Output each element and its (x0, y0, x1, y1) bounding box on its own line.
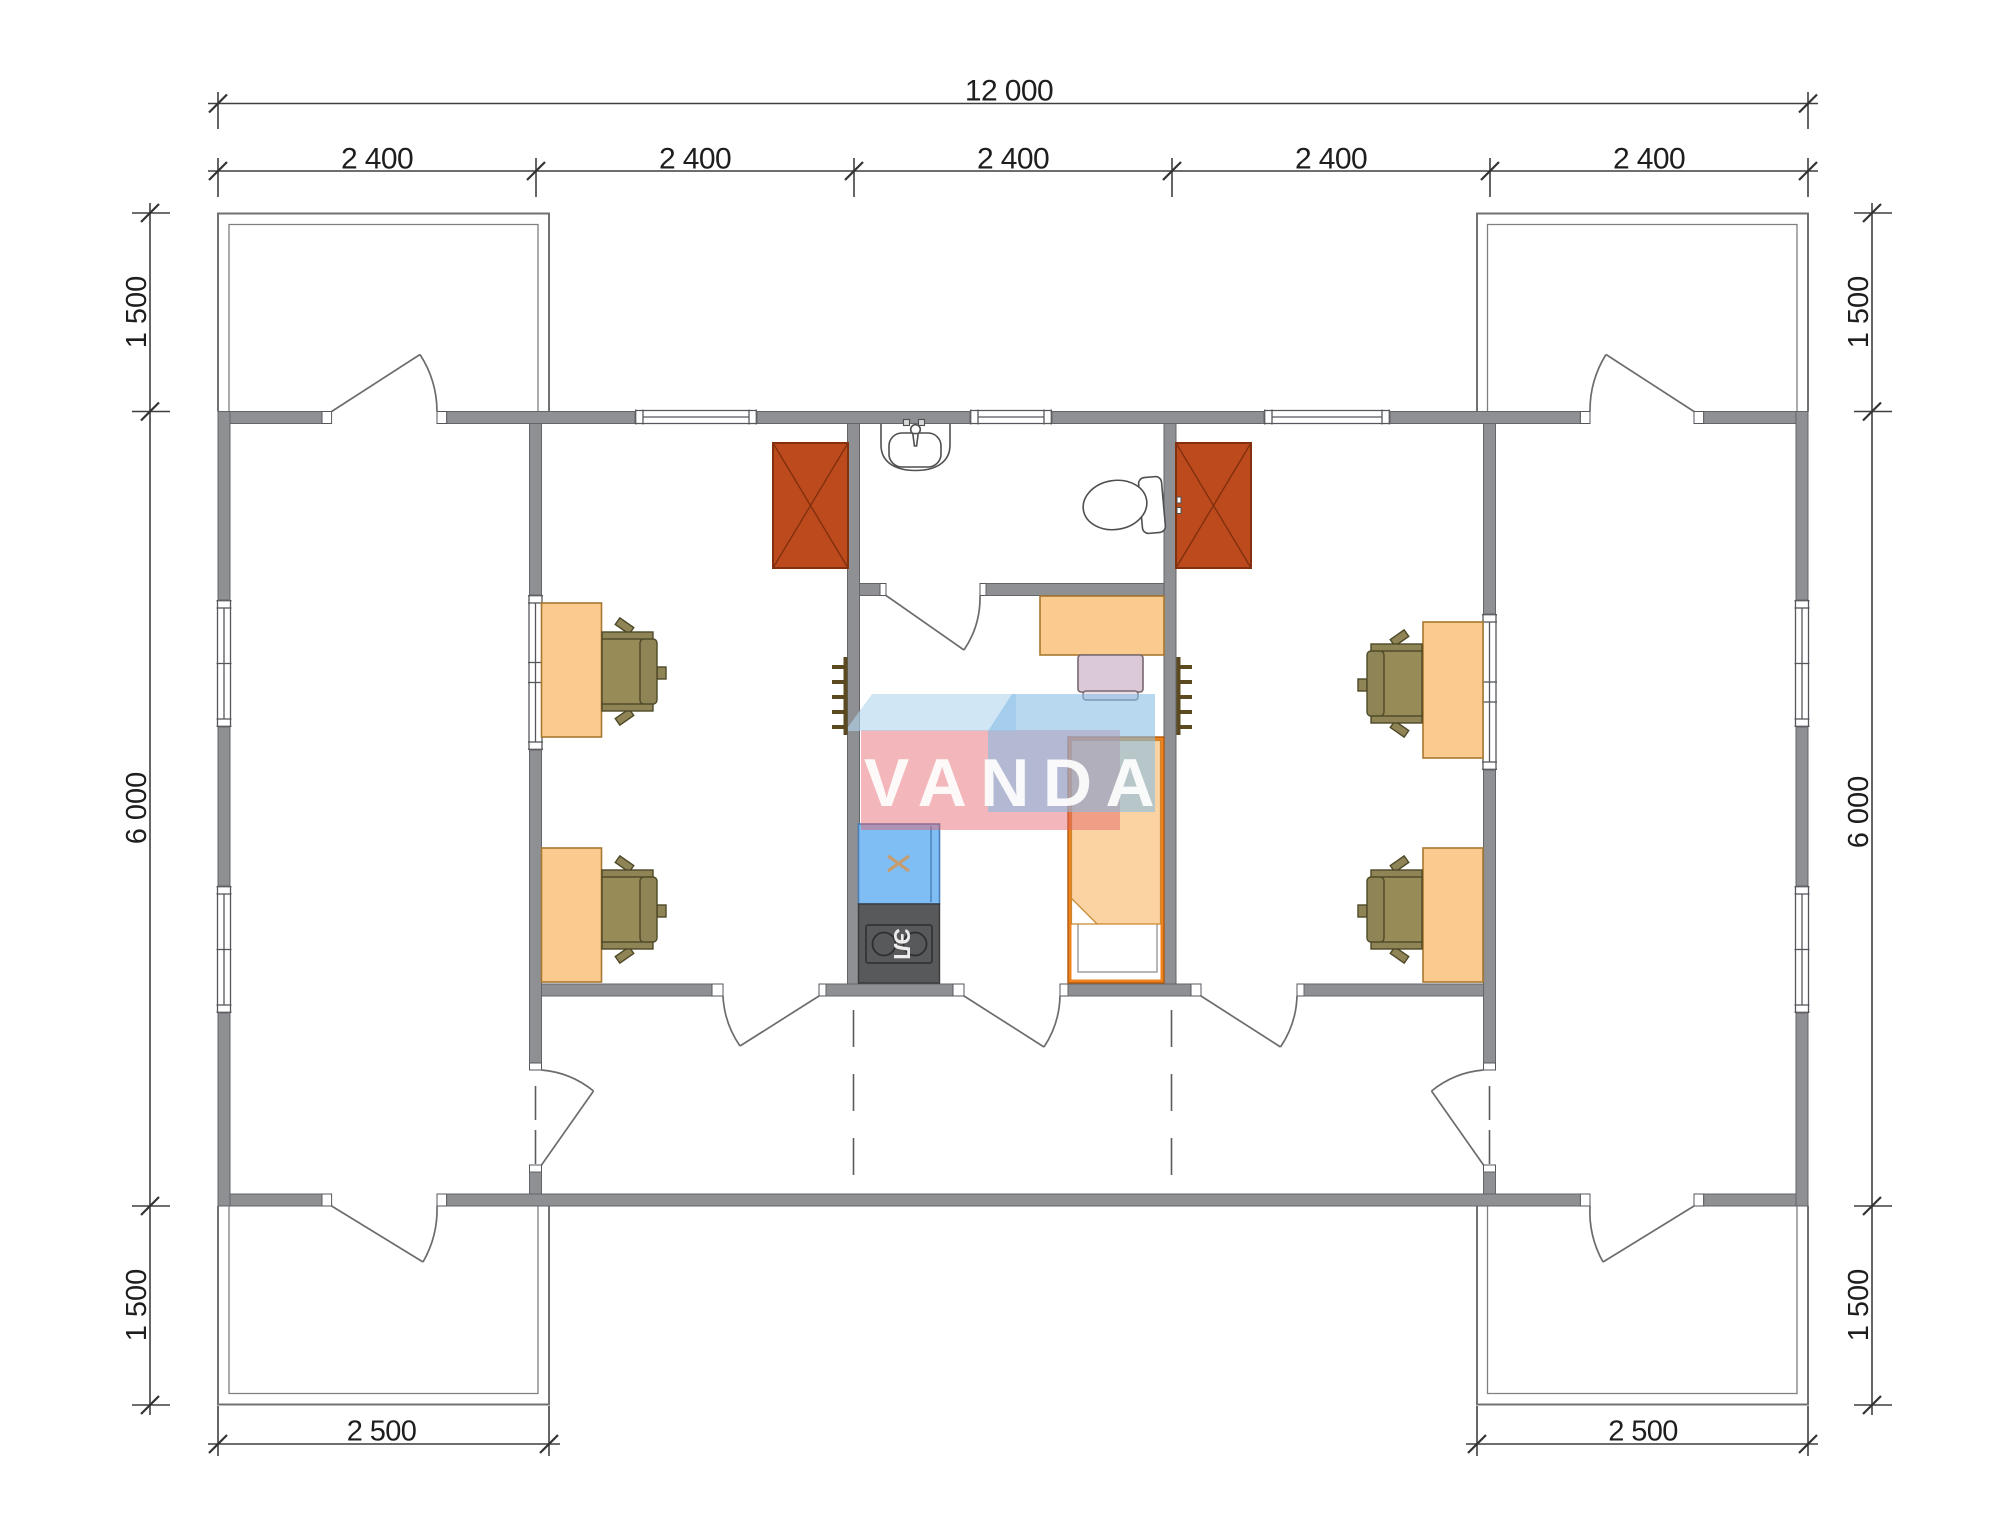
svg-text:6 000: 6 000 (1843, 776, 1875, 849)
svg-text:VANDA: VANDA (864, 745, 1168, 821)
svg-text:ЭЛ: ЭЛ (889, 928, 915, 960)
svg-text:12 000: 12 000 (965, 75, 1053, 108)
svg-text:2 400: 2 400 (977, 143, 1049, 176)
svg-text:2 500: 2 500 (1608, 1416, 1678, 1448)
svg-text:1 500: 1 500 (1843, 276, 1875, 349)
svg-text:2 400: 2 400 (659, 143, 731, 176)
svg-text:2 400: 2 400 (1295, 143, 1367, 176)
svg-text:2 500: 2 500 (347, 1416, 417, 1448)
svg-text:2 400: 2 400 (1613, 143, 1685, 176)
svg-text:1 500: 1 500 (121, 276, 153, 349)
svg-text:6 000: 6 000 (121, 772, 153, 845)
svg-text:1 500: 1 500 (1843, 1269, 1875, 1342)
svg-text:2 400: 2 400 (341, 143, 413, 176)
svg-text:1 500: 1 500 (121, 1269, 153, 1342)
